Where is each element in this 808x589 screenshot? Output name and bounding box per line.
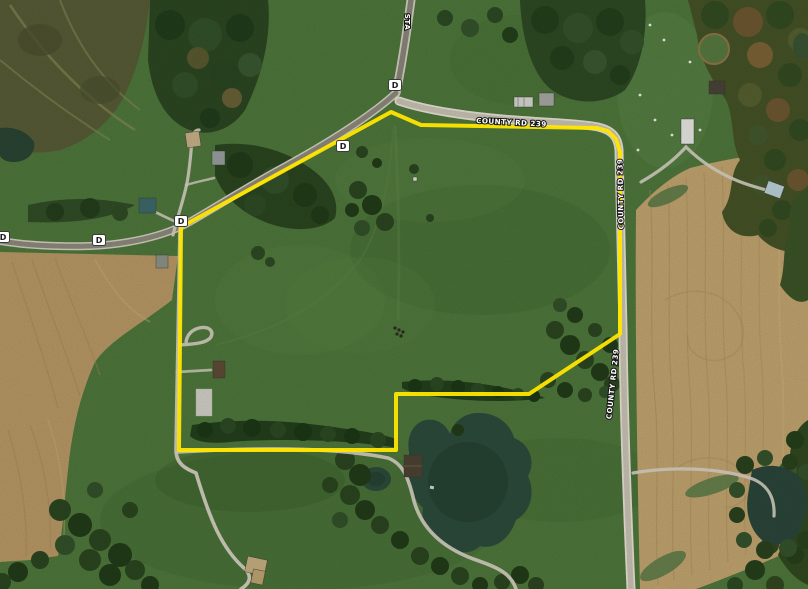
route-shield-d-left-edge: D [0, 232, 10, 243]
label-state-hwy-partial: STA [403, 14, 412, 30]
svg-text:D: D [392, 81, 399, 90]
texture-overlay [0, 0, 808, 589]
map-canvas[interactable]: COUNTY RD 239 COUNTY RD 239 COUNTY RD 23… [0, 0, 808, 589]
label-county-rd-east-upper: COUNTY RD 239 [615, 159, 625, 230]
svg-text:D: D [178, 217, 185, 226]
route-shield-d-mid: D [337, 141, 350, 152]
route-shield-d-west-junction: D [175, 216, 188, 227]
svg-text:D: D [0, 233, 7, 242]
svg-text:D: D [340, 142, 347, 151]
svg-text:D: D [96, 236, 103, 245]
map-viewport[interactable]: COUNTY RD 239 COUNTY RD 239 COUNTY RD 23… [0, 0, 808, 589]
route-shield-d-left: D [93, 235, 106, 246]
route-shield-d-top-junction: D [389, 80, 402, 91]
